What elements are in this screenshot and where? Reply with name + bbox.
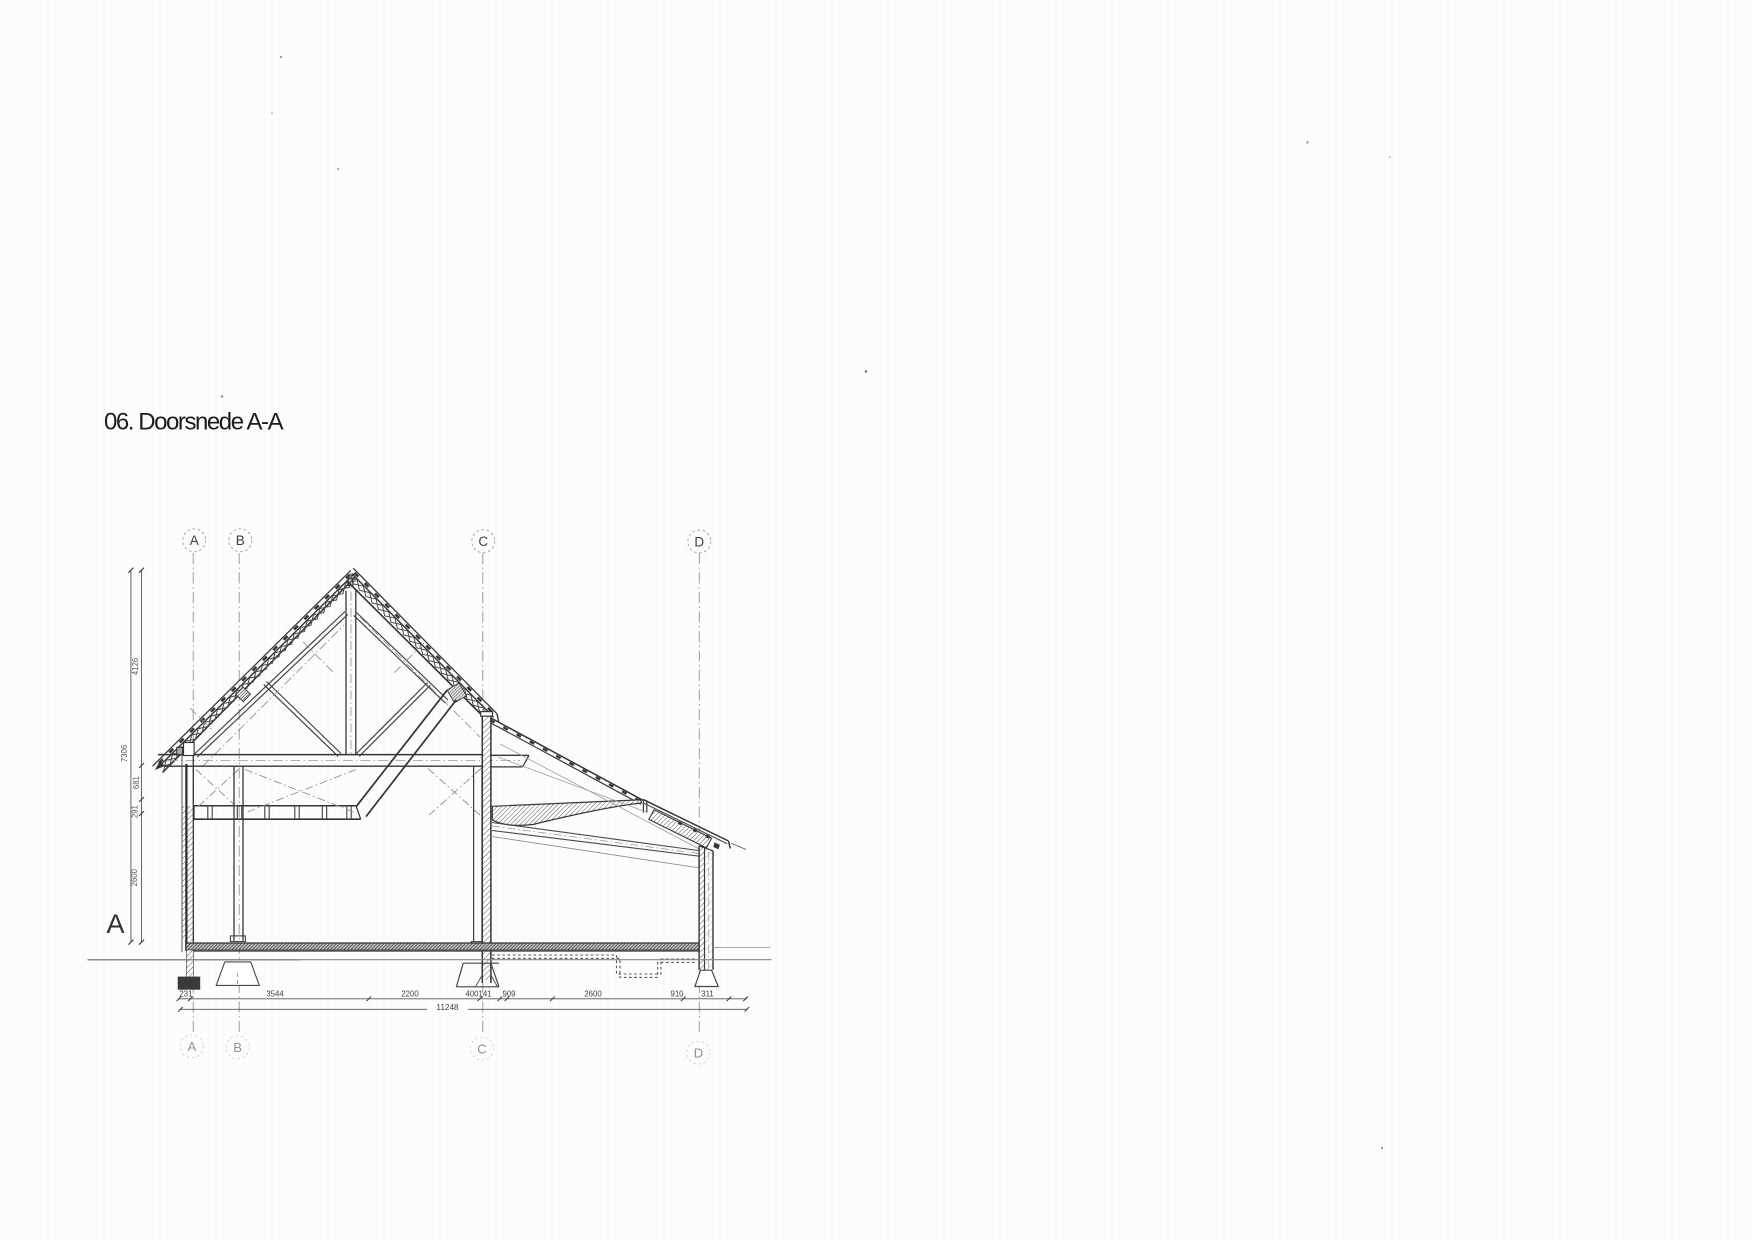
svg-text:A: A xyxy=(107,909,125,939)
svg-text:4126: 4126 xyxy=(131,658,140,675)
svg-text:311: 311 xyxy=(701,989,713,998)
svg-text:A: A xyxy=(187,1039,196,1054)
svg-text:910: 910 xyxy=(670,989,684,998)
svg-text:06. Doorsnede A-A: 06. Doorsnede A-A xyxy=(104,409,284,436)
svg-text:C: C xyxy=(477,1041,486,1056)
svg-text:B: B xyxy=(236,533,245,548)
svg-text:D: D xyxy=(694,534,704,549)
svg-text:400141: 400141 xyxy=(465,989,491,998)
svg-text:3544: 3544 xyxy=(266,989,284,998)
svg-text:B: B xyxy=(233,1040,242,1055)
svg-text:2600: 2600 xyxy=(584,989,602,998)
svg-text:C: C xyxy=(478,534,488,549)
svg-text:909: 909 xyxy=(502,989,515,998)
svg-text:681: 681 xyxy=(132,776,141,789)
svg-text:231: 231 xyxy=(179,989,192,998)
svg-text:2200: 2200 xyxy=(401,989,419,998)
svg-text:D: D xyxy=(694,1045,703,1060)
svg-text:291: 291 xyxy=(131,805,140,818)
svg-text:2600: 2600 xyxy=(130,868,139,886)
svg-text:11248: 11248 xyxy=(436,1003,459,1012)
svg-text:A: A xyxy=(190,533,199,548)
svg-text:7306: 7306 xyxy=(120,745,129,762)
